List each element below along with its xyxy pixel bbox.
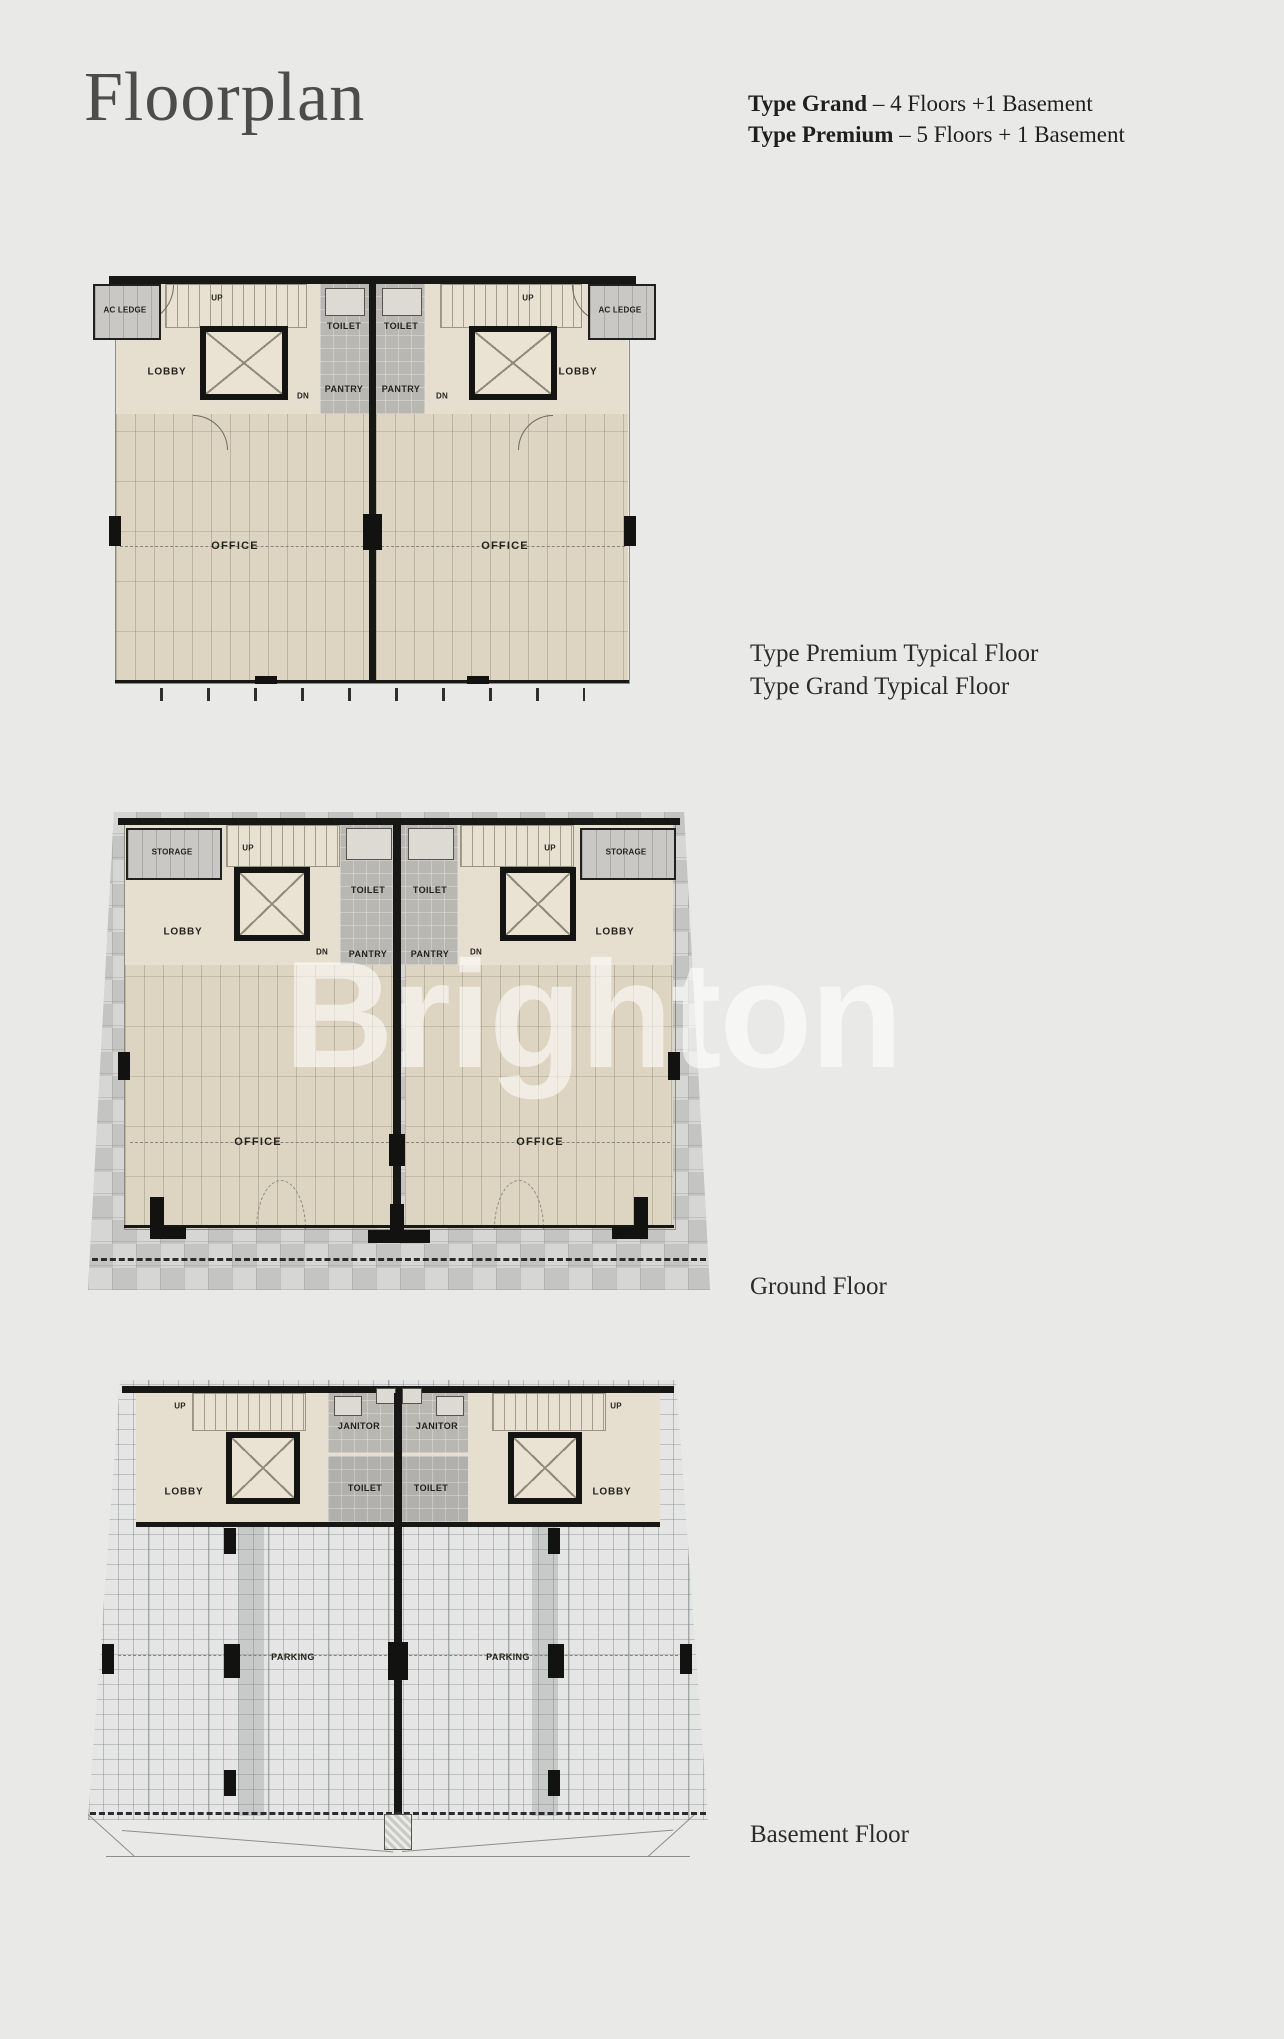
stair-right (460, 825, 574, 867)
room-label-parking-right: PARKING (486, 1652, 530, 1662)
column (389, 1134, 405, 1166)
stair-label-up-right: UP (544, 844, 556, 853)
column (624, 516, 636, 546)
room-label-toilet-left: TOILET (351, 885, 385, 895)
column (548, 1528, 560, 1554)
stair-left (165, 284, 307, 328)
stair-label-up-left: UP (211, 294, 223, 303)
room-label-storage-left: STORAGE (152, 848, 193, 857)
site-bottom-line (106, 1856, 690, 1857)
ramp-line (402, 1830, 673, 1852)
canopy-ticks (160, 688, 585, 701)
caption-typical: Type Premium Typical Floor Type Grand Ty… (750, 637, 1038, 703)
typical-floor-plan: AC LEDGE AC LEDGE UP UP LOBBY LOBBY DN D… (105, 268, 640, 720)
spec-line-grand: Type Grand – 4 Floors +1 Basement (748, 88, 1125, 119)
type-spec-block: Type Grand – 4 Floors +1 Basement Type P… (748, 88, 1125, 150)
corner-column (150, 1227, 186, 1239)
toilet-fixture-right (382, 288, 422, 316)
toilet-fixture-left (346, 828, 392, 860)
janitor-fixture-left (334, 1396, 362, 1416)
typical-bottom-wall (115, 680, 629, 683)
stair-label-up-right: UP (610, 1402, 622, 1411)
room-label-lobby-left: LOBBY (165, 1487, 204, 1498)
column (224, 1644, 240, 1678)
room-label-parking-left: PARKING (271, 1652, 315, 1662)
site-edge-line (88, 1814, 135, 1856)
stair-label-dn-right: DN (436, 392, 448, 401)
caption-ground: Ground Floor (750, 1270, 887, 1303)
boundary-dashed-line (92, 1258, 706, 1261)
site-edge-line (648, 1815, 695, 1857)
toilet-fixture-left (325, 288, 365, 316)
column (118, 1052, 130, 1080)
room-label-office-right: OFFICE (481, 540, 529, 552)
room-label-janitor-left: JANITOR (338, 1421, 380, 1431)
column (363, 514, 382, 550)
brighton-watermark: Brighton (284, 928, 901, 1103)
column (255, 676, 277, 684)
room-label-lobby-left: LOBBY (164, 927, 203, 938)
room-label-office-right: OFFICE (516, 1136, 564, 1148)
ramp-pit (384, 1814, 412, 1850)
janitor-fixture-right (436, 1396, 464, 1416)
elevator-left (226, 1432, 300, 1504)
room-label-ac-ledge-left: AC LEDGE (103, 306, 147, 315)
room-label-storage-right: STORAGE (606, 848, 647, 857)
column (680, 1644, 692, 1674)
column (388, 1642, 408, 1680)
stair-right (440, 284, 582, 328)
stair-left (192, 1393, 306, 1431)
caption-basement: Basement Floor (750, 1818, 909, 1851)
column (467, 676, 489, 684)
brochure-page: { "header": { "title": "Floorplan", "spe… (0, 0, 1284, 2039)
spec-premium-bold: Type Premium (748, 122, 893, 147)
stair-label-up-left: UP (174, 1402, 186, 1411)
room-label-toilet-right: TOILET (413, 885, 447, 895)
caption-typical-line2: Type Grand Typical Floor (750, 670, 1038, 703)
spec-line-premium: Type Premium – 5 Floors + 1 Basement (748, 119, 1125, 150)
column (224, 1528, 236, 1554)
room-label-pantry-left: PANTRY (325, 384, 363, 394)
room-label-lobby-right: LOBBY (559, 367, 598, 378)
room-label-toilet-left: TOILET (327, 321, 361, 331)
basement-floor-plan: UP UP JANITOR JANITOR LOBBY LOBBY TOILET… (88, 1362, 708, 1862)
room-label-toilet-right: TOILET (414, 1483, 448, 1493)
room-label-lobby-left: LOBBY (148, 367, 187, 378)
spec-premium-rest: – 5 Floors + 1 Basement (893, 122, 1124, 147)
stair-label-dn-left: DN (297, 392, 309, 401)
room-label-toilet-right: TOILET (384, 321, 418, 331)
stair-label-up-right: UP (522, 294, 534, 303)
entry-column (368, 1230, 430, 1243)
shaft-box-left (376, 1388, 396, 1404)
room-label-pantry-right: PANTRY (382, 384, 420, 394)
ground-top-wall (118, 818, 680, 825)
column (109, 516, 121, 546)
stair-label-up-left: UP (242, 844, 254, 853)
party-wall (394, 1393, 402, 1817)
ramp-line (122, 1830, 393, 1852)
spec-grand-bold: Type Grand (748, 91, 867, 116)
corner-column (612, 1227, 648, 1239)
basement-top-wall (122, 1386, 674, 1393)
stair-right (492, 1393, 606, 1431)
room-label-janitor-right: JANITOR (416, 1421, 458, 1431)
elevator-right (508, 1432, 582, 1504)
column (102, 1644, 114, 1674)
page-title: Floorplan (84, 58, 365, 138)
typical-top-wall (109, 276, 636, 284)
column (548, 1644, 564, 1678)
entry-column (390, 1204, 404, 1232)
shaft-box-right (402, 1388, 422, 1404)
room-label-toilet-left: TOILET (348, 1483, 382, 1493)
spec-grand-rest: – 4 Floors +1 Basement (867, 91, 1093, 116)
party-wall (369, 284, 376, 682)
caption-typical-line1: Type Premium Typical Floor (750, 637, 1038, 670)
column (224, 1770, 236, 1796)
room-label-lobby-right: LOBBY (593, 1487, 632, 1498)
room-label-ac-ledge-right: AC LEDGE (598, 306, 642, 315)
toilet-fixture-right (408, 828, 454, 860)
room-label-office-left: OFFICE (211, 540, 259, 552)
elevator-left (200, 326, 288, 400)
room-label-office-left: OFFICE (234, 1136, 282, 1148)
elevator-right (469, 326, 557, 400)
column (548, 1770, 560, 1796)
